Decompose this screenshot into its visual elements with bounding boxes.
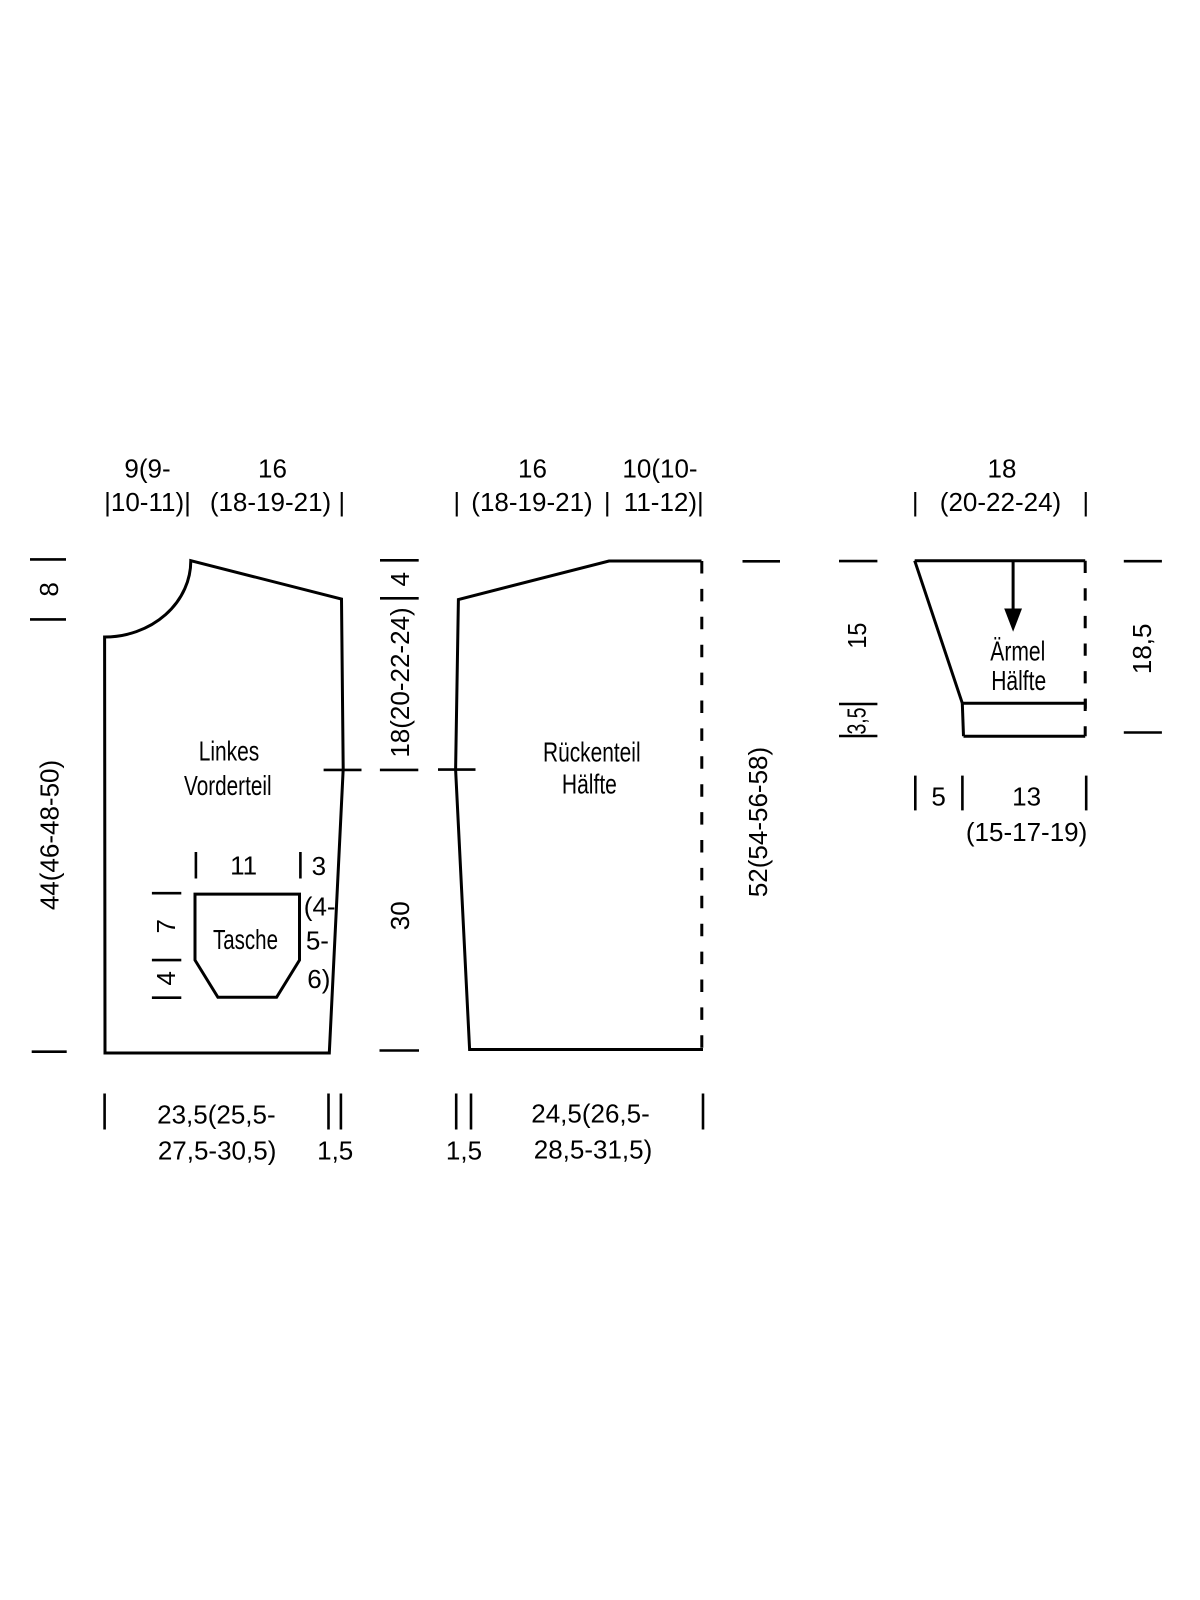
svg-text:16: 16 [518, 453, 547, 483]
svg-text:6): 6) [307, 964, 330, 994]
svg-text:18: 18 [988, 453, 1017, 483]
svg-text:44(46-48-50): 44(46-48-50) [34, 760, 64, 910]
svg-text:8: 8 [34, 582, 64, 596]
svg-text:4: 4 [385, 572, 415, 586]
svg-text:15: 15 [842, 623, 872, 649]
svg-text:24,5(26,5-: 24,5(26,5- [531, 1099, 650, 1129]
svg-text:13: 13 [1012, 781, 1041, 811]
svg-text:28,5-31,5): 28,5-31,5) [534, 1135, 653, 1165]
svg-text:| (20-22-24) |: | (20-22-24) | [912, 487, 1089, 517]
svg-text:Hälfte: Hälfte [562, 768, 617, 799]
svg-text:3,5: 3,5 [842, 708, 872, 735]
svg-text:| (18-19-21) |: | (18-19-21) | [453, 487, 610, 517]
svg-text:30: 30 [385, 901, 415, 930]
svg-text:1,5: 1,5 [317, 1135, 353, 1165]
svg-text:27,5-30,5): 27,5-30,5) [158, 1135, 277, 1165]
svg-text:(18-19-21) |: (18-19-21) | [210, 487, 345, 517]
svg-text:3: 3 [312, 851, 326, 881]
svg-text:Rückenteil: Rückenteil [543, 737, 641, 768]
svg-text:11: 11 [230, 850, 257, 880]
svg-text:16: 16 [258, 453, 287, 483]
svg-text:Hälfte: Hälfte [991, 665, 1046, 696]
svg-text:5: 5 [931, 781, 945, 811]
svg-text:23,5(25,5-: 23,5(25,5- [157, 1099, 276, 1129]
svg-text:18,5: 18,5 [1127, 623, 1157, 674]
svg-text:10(10-: 10(10- [622, 453, 697, 483]
svg-text:(4-: (4- [304, 892, 336, 922]
svg-text:11-12)|: 11-12)| [624, 487, 704, 517]
svg-text:4: 4 [151, 971, 181, 985]
svg-text:7: 7 [151, 919, 181, 933]
svg-text:Tasche: Tasche [213, 924, 278, 955]
svg-text:|10-11)|: |10-11)| [104, 487, 191, 517]
svg-text:(15-17-19): (15-17-19) [966, 817, 1087, 847]
svg-text:Linkes: Linkes [199, 736, 260, 767]
svg-text:Ärmel: Ärmel [990, 636, 1045, 667]
svg-text:52(54-56-58): 52(54-56-58) [743, 747, 773, 897]
svg-text:Vorderteil: Vorderteil [184, 770, 272, 801]
svg-text:5-: 5- [306, 925, 329, 955]
svg-text:9(9-: 9(9- [124, 453, 170, 483]
svg-text:18(20-22-24): 18(20-22-24) [385, 607, 415, 757]
svg-text:1,5: 1,5 [446, 1135, 482, 1165]
